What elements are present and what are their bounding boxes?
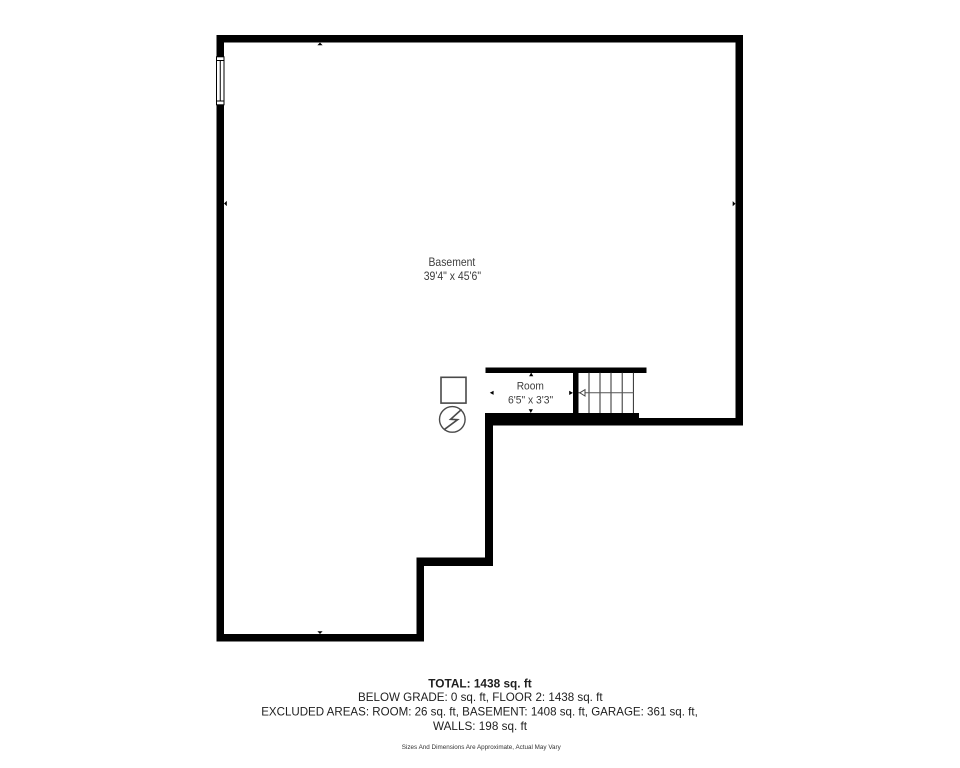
svg-text:Room: Room <box>517 380 544 392</box>
svg-text:Sizes And Dimensions Are Appro: Sizes And Dimensions Are Approximate, Ac… <box>402 744 562 751</box>
svg-text:Basement: Basement <box>429 256 476 269</box>
svg-text:6'5" x 3'3": 6'5" x 3'3" <box>508 395 553 407</box>
svg-text:WALLS: 198 sq. ft: WALLS: 198 sq. ft <box>433 719 528 733</box>
svg-text:BELOW GRADE: 0 sq. ft, FLOOR 2: BELOW GRADE: 0 sq. ft, FLOOR 2: 1438 sq.… <box>358 690 603 704</box>
svg-text:EXCLUDED AREAS: ROOM: 26 sq. f: EXCLUDED AREAS: ROOM: 26 sq. ft, BASEMEN… <box>261 705 698 719</box>
svg-text:39'4" x 45'6": 39'4" x 45'6" <box>424 270 481 283</box>
svg-text:TOTAL: 1438 sq. ft: TOTAL: 1438 sq. ft <box>428 677 531 691</box>
